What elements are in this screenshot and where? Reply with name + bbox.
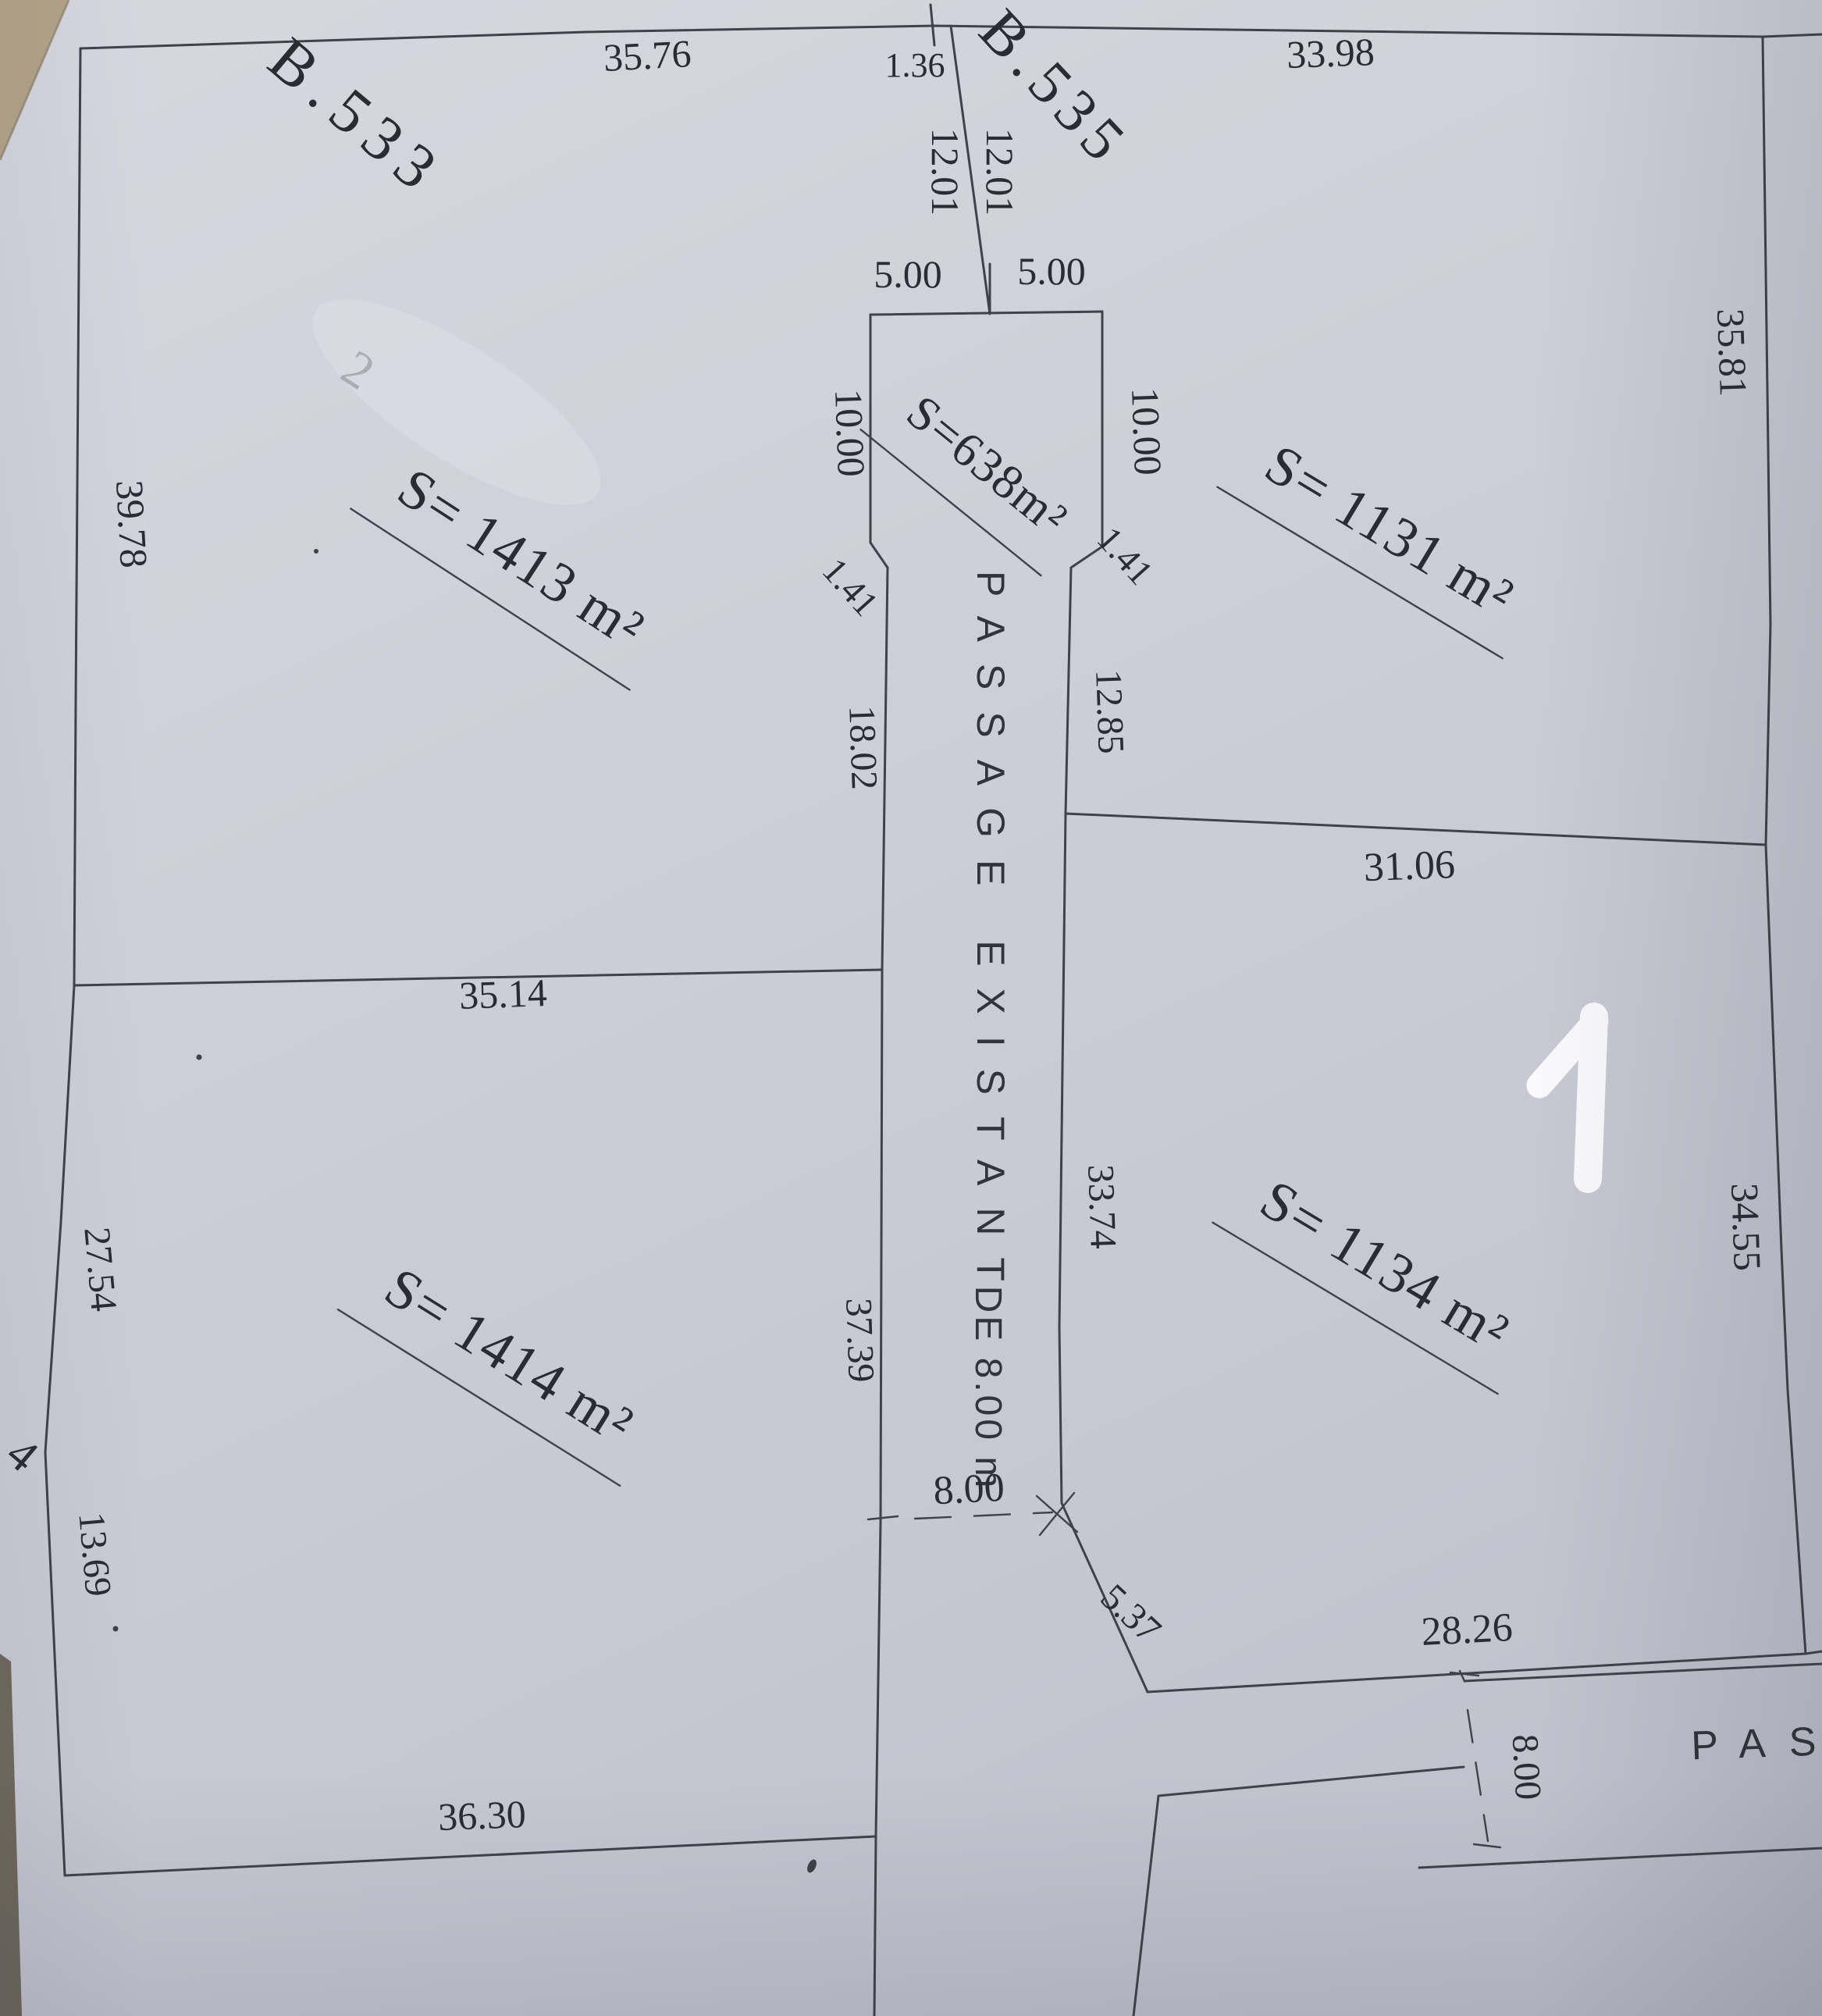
speck xyxy=(113,1626,119,1632)
dim-left-lower: 13.69 xyxy=(70,1511,119,1598)
dim-division-right: 12.01 xyxy=(978,128,1022,216)
dim-division-left: 12.01 xyxy=(923,128,967,216)
dim-strip-left-lower: 37.39 xyxy=(838,1298,882,1384)
scanned-plan-page: 2 B.533 B.535 S= 1413 m² S= 1414 m² S=63… xyxy=(0,0,1822,2016)
funnel-right-edge xyxy=(1071,312,1102,568)
dimension-labels: 35.76 1.36 12.01 12.01 5.00 5.00 33.98 3… xyxy=(0,30,1770,1839)
bottom-parcel-outline xyxy=(1133,1767,1464,2016)
tick-side-passage-bottom xyxy=(1474,1844,1500,1847)
side-passage-top-edge xyxy=(1464,1664,1822,1681)
dim-funnel-left: 10.00 xyxy=(827,388,874,477)
dim-strip-right-lower: 33.74 xyxy=(1080,1164,1124,1250)
table-sliver-bottom-left xyxy=(0,1654,22,2016)
boundary-bottom-right-2826 xyxy=(1148,1651,1822,1692)
dim-right-upper: 35.81 xyxy=(1709,308,1756,397)
speck xyxy=(314,549,318,554)
area-text: S= 1134 m² xyxy=(1250,1168,1520,1365)
white-marker-1 xyxy=(1539,1017,1596,1179)
area-text: S= 1131 m² xyxy=(1254,433,1525,629)
dim-right-lower: 34.55 xyxy=(1723,1182,1770,1271)
boundary-right xyxy=(1763,37,1806,1654)
dim-mid-left: 35.14 xyxy=(458,971,547,1017)
boundary-bottom-3630 xyxy=(65,1836,876,1875)
area-label-s1134: S= 1134 m² xyxy=(1213,1152,1541,1394)
dim-side-passage-width: 8.00 xyxy=(1504,1733,1549,1801)
dim-top-left: 35.76 xyxy=(602,31,692,80)
dim-funnel-right: 10.00 xyxy=(1123,386,1170,476)
speck xyxy=(197,1055,202,1060)
dim-strip-left-upper: 18.02 xyxy=(841,705,885,791)
dashed-side-passage-width xyxy=(1468,1710,1488,1841)
boundary-left xyxy=(45,48,80,1875)
passage-name-label: PASSAGE EXISTANT xyxy=(969,571,1012,1303)
dim-bottom-right: 28.26 xyxy=(1420,1605,1514,1654)
scan-specks xyxy=(113,549,819,1874)
passage-right-edge xyxy=(1059,568,1071,1503)
dim-funnel-top-right: 5.00 xyxy=(1017,249,1086,293)
dim-bottom: 36.30 xyxy=(437,1792,526,1839)
passage-width-label: DE 8.00 m xyxy=(967,1286,1009,1491)
area-label-s638: S=638m² xyxy=(861,369,1091,575)
dim-neighbor-partial: 4 xyxy=(0,1427,48,1482)
step-join xyxy=(1460,1671,1464,1681)
parcel-label-b533: B.533 xyxy=(256,25,457,210)
dim-left-middle: 27.54 xyxy=(76,1226,124,1313)
boundary-mid-right-3106 xyxy=(1066,814,1766,845)
dim-chamfer-right: 1.41 xyxy=(1090,519,1162,593)
area-text: S= 1414 m² xyxy=(375,1256,645,1457)
dim-exit-chamfer: 5.37 xyxy=(1093,1576,1169,1651)
dim-funnel-top-left: 5.00 xyxy=(874,252,942,296)
side-passage-bottom-edge xyxy=(1419,1848,1822,1868)
dim-chamfer-left: 1.41 xyxy=(815,550,887,624)
cadastral-plan-svg: 2 B.533 B.535 S= 1413 m² S= 1414 m² S=63… xyxy=(0,0,1822,2016)
dim-strip-right-upper: 12.85 xyxy=(1087,669,1132,755)
dim-left-upper: 39.78 xyxy=(108,479,156,568)
dim-mid-right: 31.06 xyxy=(1363,842,1456,890)
tick-exit-left xyxy=(868,1516,898,1519)
dim-offset: 1.36 xyxy=(885,46,945,84)
funnel-top xyxy=(870,312,1102,315)
x-mark xyxy=(1037,1493,1077,1535)
area-label-s1131: S= 1131 m² xyxy=(1218,416,1546,658)
area-text: S=638m² xyxy=(897,385,1078,546)
dim-top-right: 33.98 xyxy=(1286,30,1375,77)
dim-exit-width: 8.00 xyxy=(932,1466,1005,1514)
side-passage-label: PAS xyxy=(1690,1719,1822,1769)
boundary-lines xyxy=(45,5,1822,2016)
comma-mark xyxy=(806,1858,819,1875)
area-label-s1414: S= 1414 m² xyxy=(338,1239,664,1486)
